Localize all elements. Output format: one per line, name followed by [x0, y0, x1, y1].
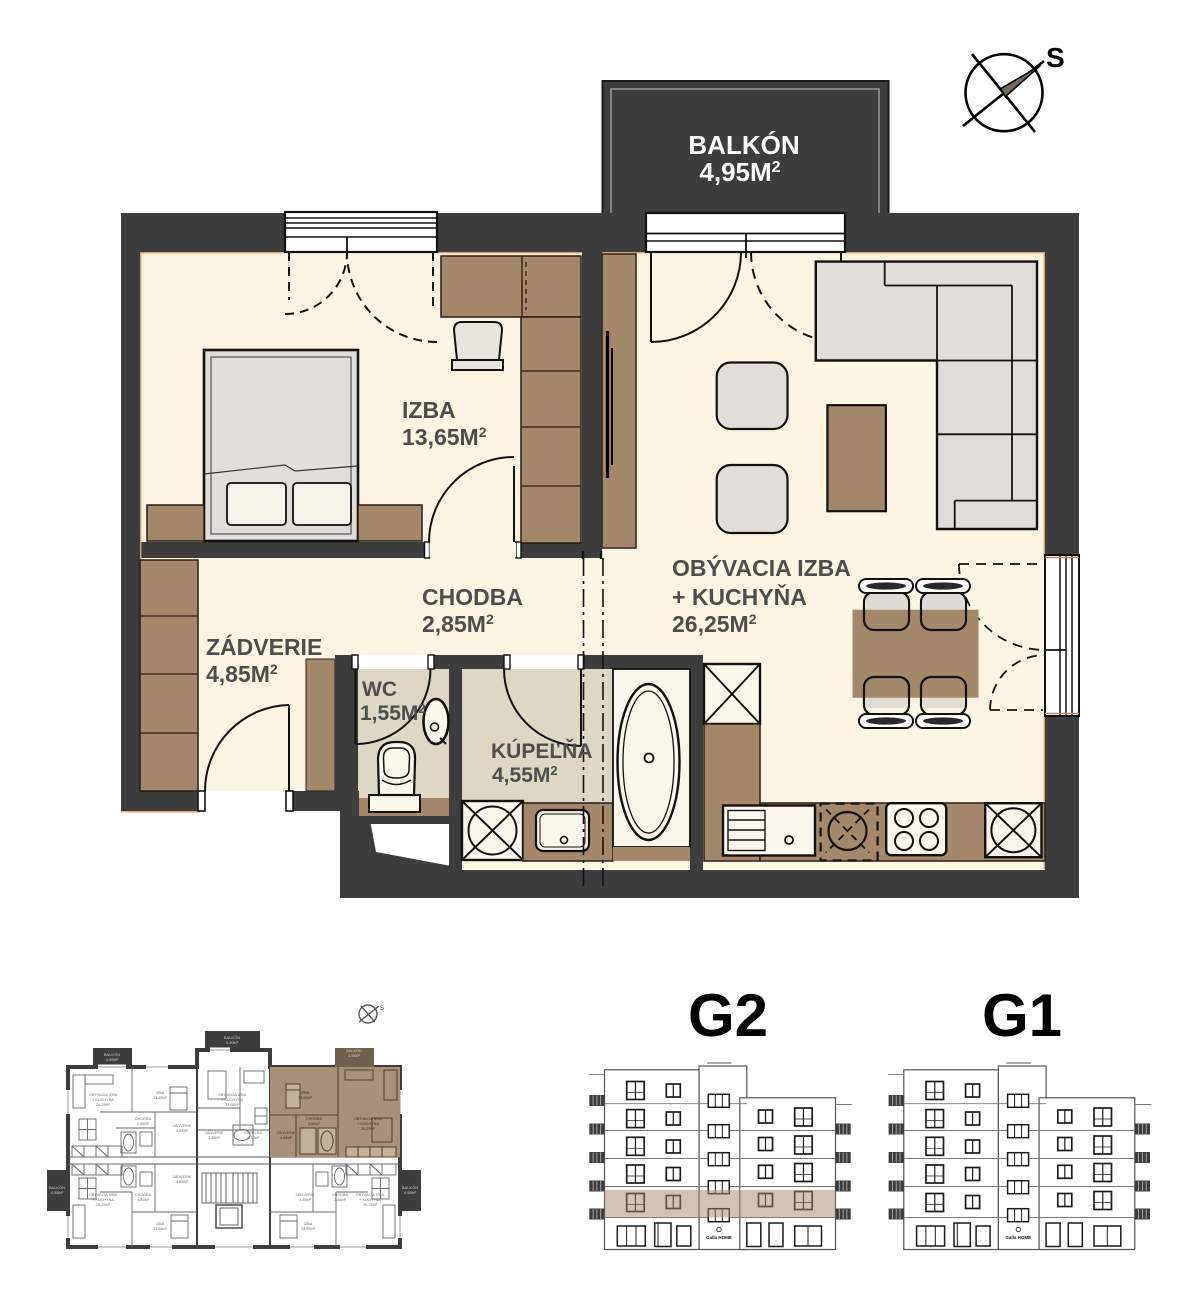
- svg-text:13,65M²: 13,65M²: [298, 1096, 313, 1100]
- svg-text:4,85M²: 4,85M²: [299, 1198, 312, 1202]
- svg-text:13,65M2: 13,65M2: [402, 424, 487, 450]
- svg-text:4,85M²: 4,85M²: [176, 1129, 189, 1133]
- svg-text:+ KUCHYŇA: + KUCHYŇA: [359, 1197, 381, 1202]
- svg-text:4,85M²: 4,85M²: [137, 1198, 150, 1202]
- svg-text:4,85M²: 4,85M²: [176, 1180, 189, 1184]
- svg-text:ZÁDVERIE: ZÁDVERIE: [173, 1175, 192, 1179]
- svg-text:IZBA: IZBA: [304, 1222, 313, 1226]
- svg-text:4,95M²: 4,95M²: [51, 1190, 64, 1195]
- svg-text:ZÁDVERIE: ZÁDVERIE: [296, 1193, 315, 1197]
- svg-text:IZBA: IZBA: [402, 397, 456, 423]
- svg-text:OBÝVACIA IZBA: OBÝVACIA IZBA: [672, 554, 851, 581]
- svg-text:WC: WC: [362, 678, 397, 701]
- svg-text:4,85M²: 4,85M²: [280, 1136, 293, 1140]
- svg-text:S: S: [1046, 42, 1065, 73]
- svg-text:OBÝVACIA IZBA: OBÝVACIA IZBA: [354, 1117, 383, 1121]
- svg-text:26,25M²: 26,25M²: [361, 1127, 376, 1131]
- svg-text:1,55M2: 1,55M2: [360, 701, 426, 725]
- svg-text:4,55M2: 4,55M2: [492, 763, 558, 787]
- svg-text:4,95M²: 4,95M²: [106, 1057, 119, 1062]
- svg-text:3,95M²: 3,95M²: [208, 1136, 221, 1140]
- svg-text:G2: G2: [688, 982, 768, 1049]
- svg-text:OBÝVACIA IZBA: OBÝVACIA IZBA: [218, 1093, 247, 1097]
- svg-text:4,95M2: 4,95M2: [699, 157, 780, 187]
- svg-text:BALKÓN: BALKÓN: [346, 1048, 362, 1053]
- svg-text:26,25M2: 26,25M2: [672, 611, 757, 637]
- svg-text:13,65M²: 13,65M²: [301, 1227, 316, 1231]
- svg-text:2,85M²: 2,85M²: [334, 1198, 347, 1202]
- svg-text:CHODBA: CHODBA: [422, 584, 523, 610]
- svg-text:2,85M²: 2,85M²: [308, 1122, 321, 1126]
- svg-text:+ KUCHYŇA: + KUCHYŇA: [672, 583, 807, 610]
- svg-text:CHODBA: CHODBA: [332, 1193, 349, 1197]
- svg-text:4,95M²: 4,95M²: [404, 1190, 417, 1195]
- svg-text:+ KUCHYŇA: + KUCHYŇA: [221, 1097, 243, 1102]
- svg-text:OBÝVACIA IZBA: OBÝVACIA IZBA: [356, 1193, 385, 1197]
- svg-text:CHODBA: CHODBA: [135, 1193, 152, 1197]
- svg-text:4,95M²: 4,95M²: [348, 1054, 361, 1058]
- svg-text:26,25M²: 26,25M²: [96, 1103, 111, 1107]
- svg-text:2,85M²: 2,85M²: [137, 1122, 150, 1126]
- svg-text:ZÁDVERIE: ZÁDVERIE: [277, 1131, 296, 1135]
- svg-text:G1: G1: [982, 982, 1062, 1049]
- svg-text:ZÁDVERIE: ZÁDVERIE: [173, 1124, 192, 1128]
- svg-text:13,65M²: 13,65M²: [153, 1227, 168, 1231]
- svg-text:26,25M²: 26,25M²: [96, 1203, 111, 1207]
- svg-text:33,05M²: 33,05M²: [225, 1103, 240, 1107]
- svg-text:3,30M²: 3,30M²: [226, 1040, 239, 1045]
- svg-text:+ KUCHYŇA: + KUCHYŇA: [92, 1097, 114, 1102]
- svg-text:26,25M²: 26,25M²: [363, 1203, 378, 1207]
- svg-text:+ KUCHYŇA: + KUCHYŇA: [92, 1197, 114, 1202]
- svg-text:13,65M²: 13,65M²: [153, 1096, 168, 1100]
- svg-text:IZBA: IZBA: [156, 1222, 165, 1226]
- svg-text:s: s: [380, 1003, 384, 1012]
- svg-text:CHODBA: CHODBA: [306, 1117, 323, 1121]
- svg-text:KÚPEĽŇA: KÚPEĽŇA: [244, 1130, 262, 1135]
- svg-text:BALKÓN: BALKÓN: [688, 130, 799, 160]
- svg-text:CHODBA: CHODBA: [135, 1117, 152, 1121]
- svg-text:ZÁDVERIE: ZÁDVERIE: [206, 633, 322, 660]
- svg-text:KÚPEĽŇA: KÚPEĽŇA: [491, 739, 593, 763]
- svg-text:2,85M2: 2,85M2: [422, 611, 494, 637]
- svg-text:4,20M²: 4,20M²: [247, 1136, 260, 1140]
- svg-text:ZÁDVERIE: ZÁDVERIE: [205, 1131, 224, 1135]
- svg-text:IZBA: IZBA: [156, 1091, 165, 1095]
- svg-text:OBÝVACIA IZBA: OBÝVACIA IZBA: [89, 1093, 118, 1097]
- svg-text:OBÝVACIA IZBA: OBÝVACIA IZBA: [89, 1193, 118, 1197]
- svg-text:IZBA: IZBA: [301, 1091, 310, 1095]
- svg-text:4,85M2: 4,85M2: [206, 661, 278, 687]
- svg-text:+ KUCHYŇA: + KUCHYŇA: [357, 1121, 379, 1126]
